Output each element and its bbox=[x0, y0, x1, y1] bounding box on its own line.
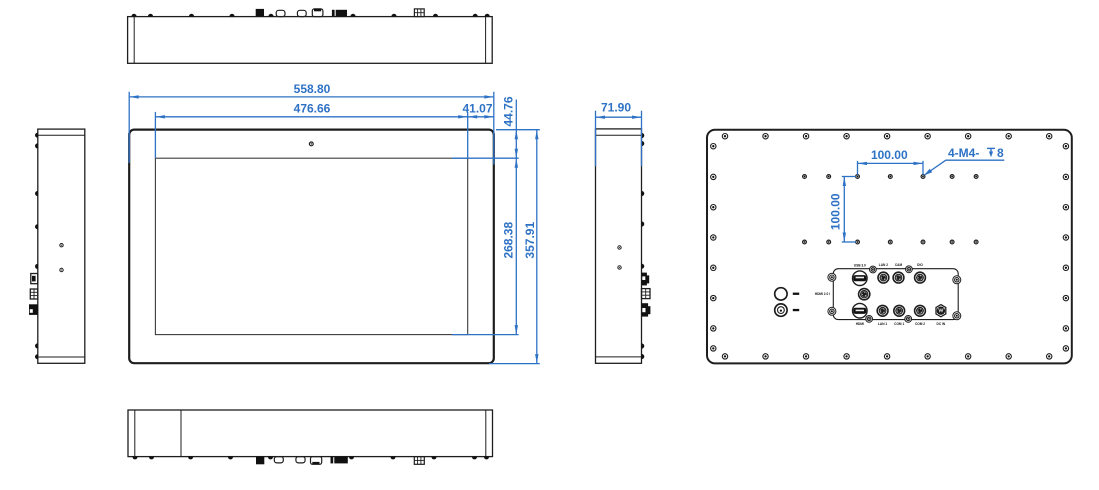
svg-text:44.76: 44.76 bbox=[501, 96, 515, 126]
svg-text:HDMI 2.0 I: HDMI 2.0 I bbox=[815, 292, 830, 296]
svg-text:LAN 2: LAN 2 bbox=[879, 263, 888, 267]
svg-text:LAN 1: LAN 1 bbox=[878, 322, 887, 326]
svg-text:100.00: 100.00 bbox=[871, 148, 908, 162]
svg-text:71.90: 71.90 bbox=[601, 100, 631, 114]
svg-text:558.80: 558.80 bbox=[294, 82, 331, 96]
svg-text:DIO: DIO bbox=[917, 263, 923, 267]
svg-text:476.66: 476.66 bbox=[294, 102, 331, 116]
svg-text:DC IN: DC IN bbox=[937, 322, 946, 326]
svg-text:COM 1: COM 1 bbox=[894, 322, 904, 326]
svg-text:357.91: 357.91 bbox=[523, 222, 537, 259]
svg-text:4-M4-: 4-M4- bbox=[948, 146, 979, 160]
svg-text:CAM: CAM bbox=[895, 263, 903, 267]
svg-text:HDMI: HDMI bbox=[856, 322, 864, 326]
svg-text:268.38: 268.38 bbox=[501, 222, 515, 259]
svg-text:8: 8 bbox=[997, 146, 1004, 160]
svg-text:USB 3.0: USB 3.0 bbox=[854, 264, 866, 268]
svg-text:COM 2: COM 2 bbox=[915, 322, 925, 326]
svg-text:100.00: 100.00 bbox=[828, 193, 842, 230]
svg-text:41.07: 41.07 bbox=[462, 102, 492, 116]
